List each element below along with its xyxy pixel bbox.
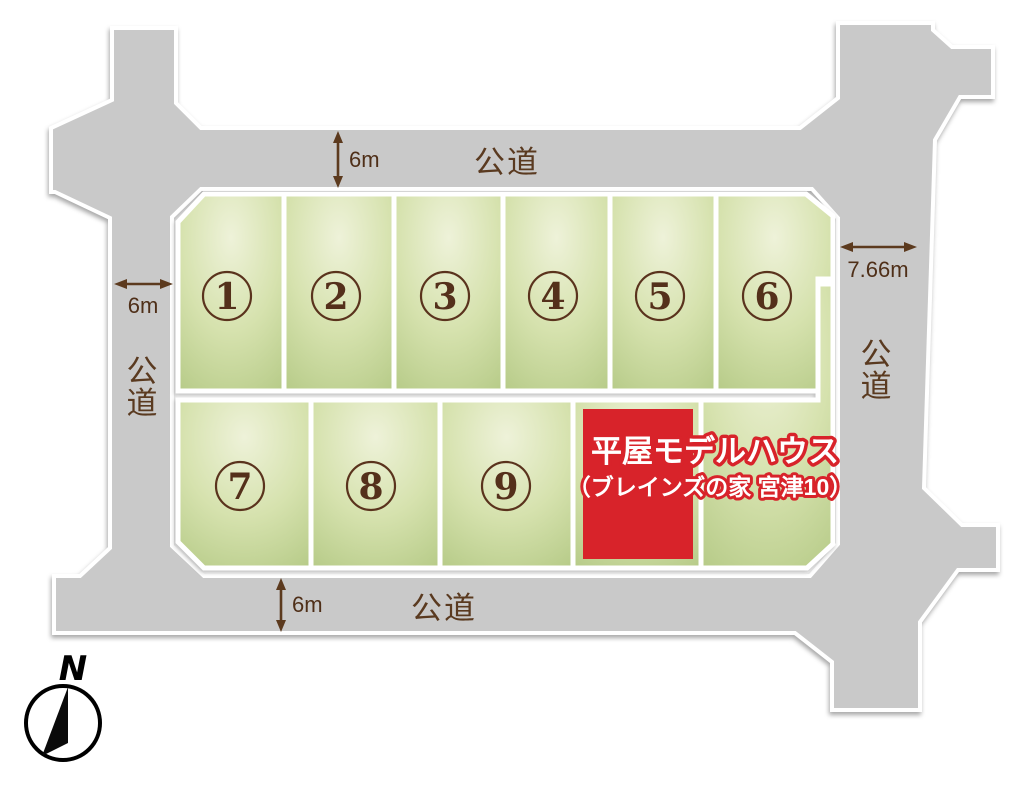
lot-number-7-label: 7: [227, 466, 252, 508]
lot-number-6-label: 6: [754, 276, 779, 318]
lots-group: [178, 194, 833, 568]
dimension-left-value: 6m: [128, 293, 159, 318]
dimension-top-value: 6m: [349, 147, 380, 172]
road-label-left: 公 道: [127, 354, 160, 421]
model-house-title: 平屋モデルハウス: [591, 434, 839, 469]
lot-number-4-label: 4: [540, 276, 565, 318]
dimension-bottom-value: 6m: [292, 592, 323, 617]
lot-number-5-label: 5: [647, 276, 672, 318]
lot-number-2-label: 2: [323, 276, 348, 318]
road-label-top: 公道: [474, 145, 540, 180]
road-label-right: 公 道: [861, 337, 894, 404]
lot-number-9-label: 9: [493, 466, 518, 508]
road-label-left-char1: 公: [127, 354, 160, 389]
dimension-right: 7.66m: [840, 242, 917, 282]
model-house-subtitle: （ブレインズの家 宮津10）: [568, 474, 853, 500]
compass-north-label: N: [59, 649, 87, 689]
lot-map-canvas: 1 2 3 4 5 6 7 8: [0, 0, 1024, 792]
road-label-right-char1: 公: [861, 337, 894, 372]
road-label-right-char2: 道: [861, 369, 894, 404]
dimension-right-value: 7.66m: [847, 257, 908, 282]
lot-number-8-label: 8: [358, 466, 383, 508]
model-house-callout: 平屋モデルハウス （ブレインズの家 宮津10）: [568, 434, 853, 500]
road-label-left-char2: 道: [127, 386, 160, 421]
compass: N: [26, 649, 100, 760]
lot-number-3-label: 3: [432, 276, 457, 318]
lot-number-1-label: 1: [214, 276, 239, 318]
road-label-bottom: 公道: [411, 591, 477, 626]
